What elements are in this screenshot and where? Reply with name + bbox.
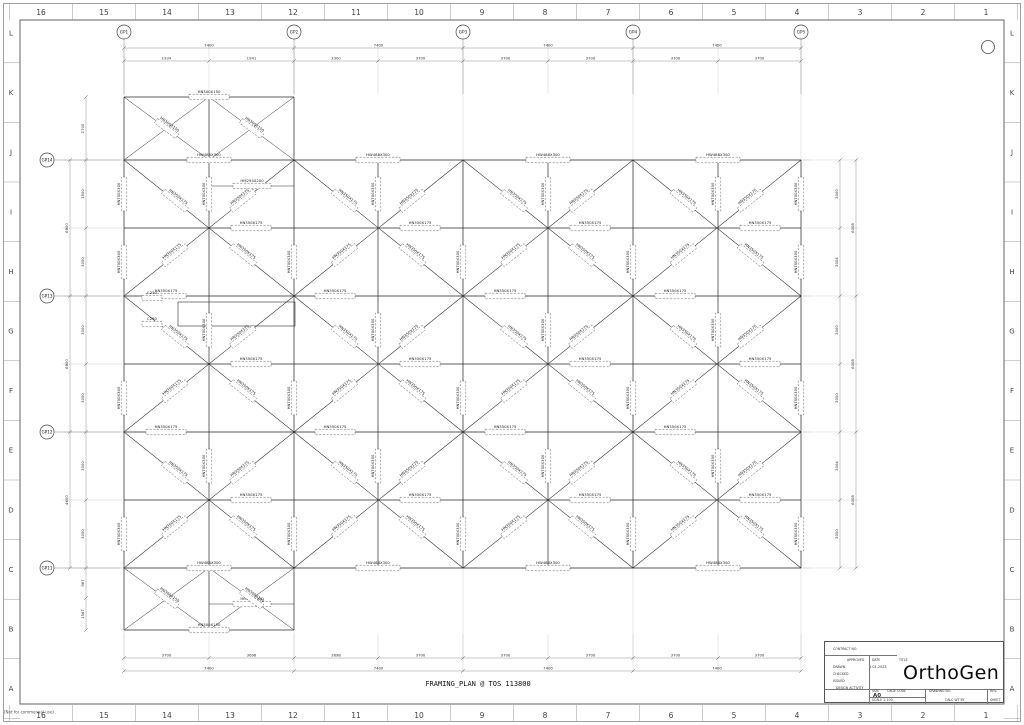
beam-symbol [570,497,610,503]
beam-symbol [545,177,551,211]
label-layer: HW488X300HW488X300HW488X300HW488X300HW48… [116,89,804,633]
dim-text: 3000 [834,393,839,403]
margin-letter: C [9,566,14,574]
grid-bubble-label: GP12 [41,429,52,434]
dim-text: 3700 [586,55,596,60]
margin-number: 15 [99,8,109,17]
beam-label: HW488X300 [696,560,740,571]
margin-number: 13 [225,8,235,17]
beam-label: HN700X300 [625,517,636,551]
beam-label: HN700X300 [455,245,466,279]
beam-label: HN350X175 [230,512,260,539]
margin-number: 11 [351,711,361,720]
dimension-layer: 7400740074007400193419413300370037003700… [64,42,858,672]
beam-symbol [206,177,212,211]
beam-label-text: HN700X300 [286,250,291,273]
beam-label: HN350X175 [396,321,426,348]
beam-label: HN700X300 [286,245,297,279]
beam-symbol [798,177,804,211]
tb-divider [869,655,870,689]
beam-label-text: HN700X300 [793,522,798,545]
dim-text: 1700 [80,123,85,133]
grid-bubble-label: GP3 [459,29,468,34]
beam-label: HN350X175 [231,220,271,231]
beam-label: HN350X175 [331,457,361,484]
beam-label: HW488X300 [356,560,400,571]
beam-label-text: HW488X300 [706,560,730,565]
tb-divider [825,689,1003,690]
drawing-sheet: 1616151514141313121211111010998877665544… [0,0,1024,725]
beam-label: HN350X175 [570,492,610,503]
beam-label: HN350X175 [667,376,697,403]
dim-text: 4600 [64,495,69,505]
beam-symbol [400,361,440,367]
beam-label-text: HW488X300 [366,560,390,565]
beam-symbol [231,225,271,231]
beam-label: HN350X175 [565,457,595,484]
margin-letter: C [1010,566,1015,574]
margin-letter: L [9,30,13,38]
margin-number: 16 [36,8,46,17]
beam-symbol [375,177,381,211]
beam-symbol [798,517,804,551]
dim-text: 3000 [834,189,839,199]
beam-label: HN350X175 [230,376,260,403]
beam-label-text: HN700X300 [201,182,206,205]
beam-symbol [356,565,400,571]
footer-note: (Not for commercial use) [4,710,54,715]
grid-bubble-label: GP1 [120,29,129,34]
beam-label-text: HN700X300 [710,454,715,477]
beam-label-text: HN700X300 [625,250,630,273]
beam-symbol [121,517,127,551]
beam-label: HN350X175 [485,288,525,299]
beam-label: HN300X150 [189,89,229,100]
grid-bubble-label: GP13 [41,293,52,298]
margin-letter: E [1010,447,1014,455]
beam-label: HN350X175 [399,376,429,403]
beam-symbol [146,429,186,435]
dim-text: 7400 [543,42,553,47]
margin-number: 5 [732,711,737,720]
margin-number: 4 [795,8,800,17]
beam-label: HN350X175 [158,512,188,539]
beam-label-text: HN350X175 [324,288,347,293]
beam-label-text: HN700X300 [540,182,545,205]
beam-symbol [696,157,740,163]
drawn-date: 5-01-2023 [869,666,887,669]
beam-label: HN350X175 [328,240,358,267]
margin-letter: G [1009,328,1014,336]
beam-label-text: HN700X300 [710,182,715,205]
beam-label: HW488X300 [356,152,400,163]
beam-label-text: HN700X300 [116,250,121,273]
beam-symbol [630,245,636,279]
beam-symbol [655,429,695,435]
beam-label: HM294X200 [233,178,271,189]
beam-symbol [460,517,466,551]
beam-label: HN350X175 [501,321,531,348]
grid-bubble-label: GP11 [41,565,52,570]
beam-label: HN350X175 [734,321,764,348]
margin-number: 2 [921,8,926,17]
beam-label-text: HN700X300 [201,318,206,341]
beam-symbol [715,449,721,483]
beam-label-text: HW488X300 [536,152,560,157]
beam-symbol [206,313,212,347]
beam-label: HN350X175 [396,457,426,484]
beam-label-text: HN700X300 [201,454,206,477]
margin-letter: F [9,387,13,395]
grid-bubble-label: GP5 [797,29,806,34]
beam-label: HN700X300 [370,313,381,347]
beam-label-text: HN700X300 [455,386,460,409]
beam-label: HN350X175 [497,376,527,403]
beam-label-text: HN700X300 [370,454,375,477]
margin-letter: K [9,89,14,97]
sheet-label: SHEET [990,699,1000,702]
beam-label-text: HW488X300 [706,152,730,157]
beam-symbol [526,565,570,571]
margin-letter: G [8,328,13,336]
dim-text: 3700 [501,652,511,657]
dim-text: 3700 [162,652,172,657]
beam-symbol [315,429,355,435]
margin-number: 14 [162,711,172,720]
stamp-circle [982,41,995,54]
beam-label: HN350X175 [734,457,764,484]
scale-label: SCALE [872,699,882,702]
beam-label: HN350X175 [328,512,358,539]
dim-text: 3700 [671,652,681,657]
beam-label-text: HN350X175 [409,356,432,361]
beam-label: HN700X300 [116,245,127,279]
beam-label-text: HN700X300 [710,318,715,341]
dim-text: 3000 [80,461,85,471]
beam-label: C250 [142,316,162,327]
beam-label-text: HN350X175 [664,424,687,429]
beam-label: HN350X175 [331,185,361,212]
beam-symbol [630,381,636,415]
beam-label: HN300X150 [239,114,266,138]
margin-number: 11 [351,8,361,17]
beam-label: HN350X175 [740,492,780,503]
beam-symbol [189,94,229,100]
beam-label: HW488X300 [526,560,570,571]
beam-label-text: HN300X150 [198,622,221,627]
beam-symbol [231,361,271,367]
beam-symbol [570,225,610,231]
beam-label-text: C250 [147,290,157,295]
beam-label: HN350X175 [570,356,610,367]
dim-text: 3004 [834,461,839,471]
beam-label: HN350X175 [396,185,426,212]
beam-symbol [375,449,381,483]
beam-symbol [121,381,127,415]
margin-letter: H [8,268,13,276]
dim-text: 3700 [586,652,596,657]
dim-text: 3700 [501,55,511,60]
dim-text: 6008 [850,223,855,233]
beam-symbol [121,245,127,279]
drawing-no-label: DRAWING NO. [929,690,951,693]
beam-label: HN350X175 [501,457,531,484]
beam-label: HN700X300 [710,177,721,211]
margin-number: 8 [543,8,548,17]
beam-label-text: HN700X300 [625,386,630,409]
dim-text: 3700 [671,55,681,60]
margin-letter: A [9,685,14,693]
beam-label: HN350X175 [331,321,361,348]
beam-symbol [189,627,229,633]
beam-symbol [231,497,271,503]
beam-label: HN350X175 [565,321,595,348]
margin-letter: E [9,447,13,455]
margin-number: 9 [480,8,485,17]
margin-letter: J [1010,149,1013,157]
logo: OrthoGen [903,662,999,684]
margin-letter: I [1011,208,1013,216]
beam-symbol [206,449,212,483]
beam-label: HN350X175 [158,376,188,403]
beam-label-text: HN350X175 [409,492,432,497]
beam-label: HN350X175 [569,240,599,267]
beam-symbol [740,361,780,367]
dim-text: 1567 [80,609,85,619]
beam-label-text: HN350X175 [664,288,687,293]
beam-label-text: HW488X300 [197,152,221,157]
checked-label: CHECKED [833,673,848,676]
dim-text: 3698 [331,652,341,657]
beam-label: HN350X175 [655,424,695,435]
beam-symbol [315,293,355,299]
dim-text: 1934 [162,55,172,60]
rev-label: REV. [990,690,997,693]
beam-label: HN350X175 [737,240,767,267]
caption-layer: FRAMING_PLAN @ TOS 113800 [425,680,530,688]
beam-label-text: HN700X300 [116,522,121,545]
margin-letter: B [1010,626,1015,634]
tb-divider [925,689,926,704]
scale-value: 1:100 [883,699,893,702]
dim-text: 3000 [80,325,85,335]
beam-label-text: HN350X175 [494,424,517,429]
beam-label: HN700X300 [540,313,551,347]
beam-label: HN350X175 [569,512,599,539]
beam-label-text: HW488X300 [197,560,221,565]
tb-divider [825,655,897,656]
margin-number: 1 [984,8,989,17]
beam-label: HN700X300 [540,449,551,483]
margin-number: 12 [288,8,298,17]
beam-label-text: HN700X300 [625,522,630,545]
beam-symbol [740,497,780,503]
beam-label: HN350X175 [740,220,780,231]
dim-text: 3000 [80,529,85,539]
beam-label-text: HN700X300 [286,386,291,409]
beam-label-text: HN700X300 [286,522,291,545]
beam-label: HN350X175 [501,185,531,212]
beam-symbol [570,361,610,367]
cage-code-label: CAGE CODE [887,690,906,693]
beam-symbol [187,157,231,163]
dim-text: 3700 [755,55,765,60]
beam-symbol [798,381,804,415]
beam-label: HN700X300 [286,517,297,551]
beam-label-text: HN350X175 [155,288,178,293]
beam-label: HN350X175 [226,321,256,348]
beam-symbol [187,565,231,571]
beam-label: HN350X175 [497,512,527,539]
dim-text: 1500 [80,189,85,199]
beam-label: HN350X175 [670,321,700,348]
beam-label: HN700X300 [370,177,381,211]
dim-text: 7400 [374,42,384,47]
dim-text: 7400 [374,665,384,670]
margin-number: 10 [414,8,424,17]
margin-letter: A [1010,685,1015,693]
dim-text: 967 [80,579,85,587]
beam-symbol [375,313,381,347]
beam-symbol [485,429,525,435]
margin-letter: I [10,208,12,216]
beam-label: HN700X300 [710,449,721,483]
dim-text: 3000 [834,529,839,539]
title-block: CONTRACT NO. APPROVED DATE TITLE DRAWN 5… [824,641,1004,703]
beam-label: HN350X175 [667,240,697,267]
beam-label-text: HN350X175 [749,356,772,361]
beam-label: HN350X175 [497,240,527,267]
dim-text: 3004 [834,257,839,267]
dim-text: 6800 [64,223,69,233]
margin-number: 6 [669,8,674,17]
margin-number: 12 [288,711,298,720]
beam-label: HN350X175 [158,240,188,267]
beam-label-text: HN350X175 [240,356,263,361]
beam-label: HN350X175 [737,512,767,539]
beam-label: HN350X175 [146,424,186,435]
beam-label: HN700X300 [116,517,127,551]
margin-letter: L [1010,30,1014,38]
dim-text: 7400 [712,42,722,47]
beam-label: HN350X175 [162,457,192,484]
beam-label: HN350X175 [670,185,700,212]
grid-bubble-label: GP14 [41,157,52,162]
beam-symbol [655,293,695,299]
dim-text: 3700 [755,652,765,657]
margin-number: 15 [99,711,109,720]
beam-label: HN350X175 [485,424,525,435]
dim-text: 6008 [850,495,855,505]
dim-text: 1941 [247,55,257,60]
beam-label: HN350X175 [565,185,595,212]
beam-label: HN700X300 [455,517,466,551]
beam-label: HN350X175 [740,356,780,367]
margin-number: 13 [225,711,235,720]
beam-symbol [400,225,440,231]
beam-label: HN350X175 [230,240,260,267]
beam-label-text: HW488X300 [536,560,560,565]
margin-number: 5 [732,8,737,17]
margin-letter: D [1009,506,1014,514]
beam-symbol [291,381,297,415]
beam-symbol [142,321,162,327]
beam-symbol [630,517,636,551]
beam-label-text: HN350X175 [494,288,517,293]
beam-label: HN700X300 [370,449,381,483]
beam-label: HN350X175 [162,321,192,348]
beam-label: HN700X300 [201,449,212,483]
beam-symbol [121,177,127,211]
dim-text: 6008 [850,359,855,369]
beam-label: HN350X175 [315,424,355,435]
beam-label: HN700X300 [793,517,804,551]
approved-label: APPROVED [847,659,864,662]
beam-label-text: HN350X175 [240,220,263,225]
beam-label-text: HN700X300 [793,182,798,205]
beam-label: HN700X300 [201,177,212,211]
beam-label-text: HM294X200 [240,178,264,183]
beam-label: HN350X175 [400,492,440,503]
beam-label: HN350X175 [162,185,192,212]
beam-label-text: HN350X175 [749,492,772,497]
beam-symbol [356,157,400,163]
beam-label-text: HN700X300 [540,318,545,341]
margin-number: 4 [795,711,800,720]
beam-symbol [400,497,440,503]
margin-letter: K [1010,89,1015,97]
dim-text: 3700 [416,55,426,60]
dim-text: 3700 [416,652,426,657]
beam-label: HN300X150 [189,622,229,633]
beam-label-text: HN350X175 [324,424,347,429]
beam-label: HN350X175 [569,376,599,403]
dim-text: 7400 [712,665,722,670]
beam-label: HN700X300 [710,313,721,347]
margin-number: 14 [162,8,172,17]
dim-text: 3000 [80,257,85,267]
beam-label-text: HN700X300 [455,522,460,545]
beam-label: HN350X175 [399,512,429,539]
beam-label: HN700X300 [793,245,804,279]
beam-label: HW488X300 [696,152,740,163]
beam-symbol [740,225,780,231]
beam-label-text: HW488X300 [366,152,390,157]
beam-symbol [460,245,466,279]
contract-no-label: CONTRACT NO. [833,648,857,651]
sheet-frame: 1616151514141313121211111010998877665544… [4,4,1021,722]
margin-number: 1 [984,711,989,720]
beam-label: HN300X150 [154,585,181,609]
opening-outline [178,302,295,326]
beam-label-text: C250 [147,316,157,321]
beam-symbol [715,313,721,347]
beam-label: HN700X300 [540,177,551,211]
beam-label: HN350X175 [226,457,256,484]
beam-symbol [798,245,804,279]
margin-number: 3 [858,8,863,17]
dim-text: 3696 [247,652,257,657]
margin-number: 6 [669,711,674,720]
beam-label: HN350X175 [670,457,700,484]
beam-label: HN350X175 [226,185,256,212]
beam-label-text: HN700X300 [370,318,375,341]
beam-label: HN700X300 [625,381,636,415]
drawn-label: DRAWN [833,666,845,669]
beam-symbol [142,295,162,301]
beam-label: HN700X300 [625,245,636,279]
beam-label: HW488X300 [187,152,231,163]
